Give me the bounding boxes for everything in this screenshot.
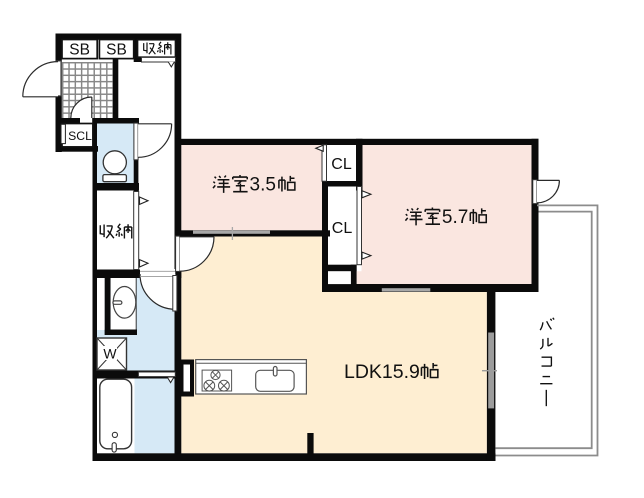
svg-text:SB: SB (69, 41, 90, 58)
svg-text:5.7: 5.7 (442, 207, 468, 228)
svg-text:LDK15.9: LDK15.9 (344, 361, 420, 383)
svg-text:W: W (103, 346, 117, 362)
svg-text:CL: CL (332, 220, 353, 237)
svg-text:SCL: SCL (68, 129, 92, 143)
svg-text:CL: CL (331, 156, 352, 173)
svg-text:3.5: 3.5 (250, 175, 276, 196)
svg-text:SB: SB (106, 41, 127, 58)
